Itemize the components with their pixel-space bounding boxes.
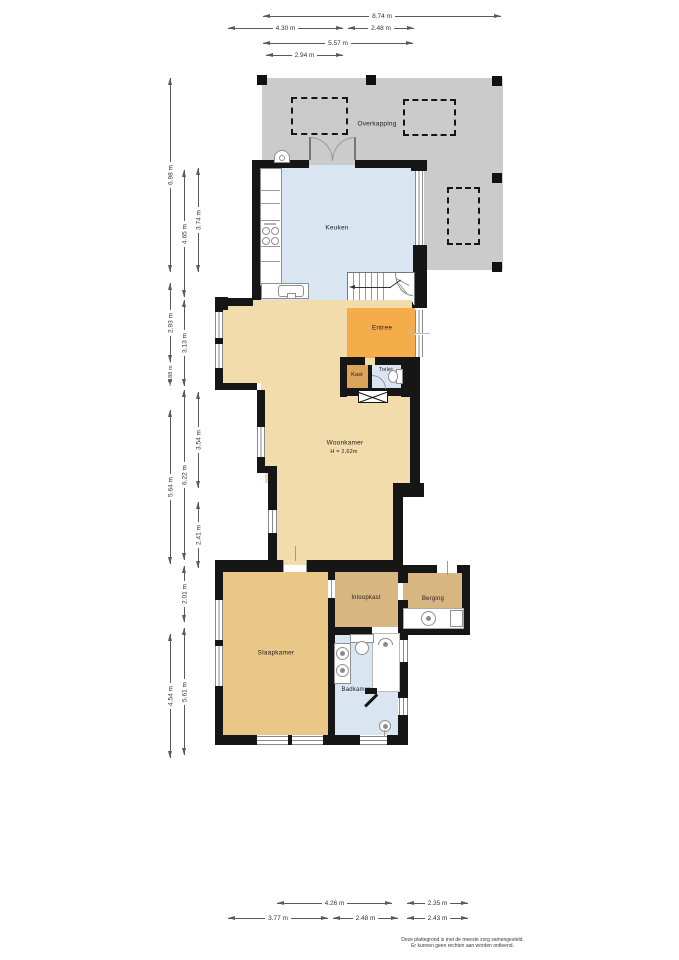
dim-label: 8.74 m	[369, 13, 395, 20]
dim-top-430: 4.30 m	[228, 28, 343, 29]
dim-bottom-377: 3.77 m	[228, 918, 328, 919]
dim-label: 3.13 m	[181, 330, 188, 356]
dim-label: 4.65 m	[181, 221, 188, 247]
shower-fixture-stem	[384, 730, 385, 736]
room-entree	[347, 308, 415, 358]
window	[399, 698, 408, 715]
dim-top-248: 2.48 m	[348, 28, 414, 29]
wall	[226, 298, 253, 306]
dim-left-374: 3.74 m	[198, 168, 199, 272]
dim-left-561: 5.61 m	[184, 628, 185, 755]
room-label-inloopkast: Inloopkast	[351, 595, 380, 601]
wall	[215, 560, 283, 572]
stove-label-mark	[264, 223, 276, 225]
disclaimer: Deze plattegrond is met de meeste zorg s…	[400, 937, 525, 949]
wall	[257, 390, 265, 427]
room-label-woonkamer: Woonkamer	[327, 440, 364, 447]
window	[360, 736, 387, 745]
dim-left-698: 6.98 m	[170, 78, 171, 272]
wall	[257, 466, 277, 473]
counter-divider	[261, 190, 280, 191]
floorplan-page: 8.74 m 4.30 m 2.48 m 5.57 m 2.94 m 6.98 …	[0, 0, 679, 960]
pipe-symbol-dot	[279, 155, 285, 161]
room-label-slaapkamer: Slaapkamer	[258, 650, 295, 657]
dim-label: 2.41 m	[195, 522, 202, 548]
stove-burner	[262, 227, 270, 235]
window	[268, 510, 277, 533]
wall	[323, 735, 360, 745]
canopy-post	[366, 75, 376, 85]
canopy-post	[492, 262, 502, 272]
skylight-outline	[291, 97, 348, 135]
wall	[215, 560, 223, 600]
dim-top-294: 2.94 m	[266, 55, 343, 56]
wall	[355, 160, 413, 168]
dim-label: 2.35 m	[425, 900, 451, 907]
wall	[398, 572, 408, 583]
dim-label: 3.77 m	[265, 915, 291, 922]
door-threshold	[447, 561, 448, 575]
window	[257, 427, 265, 457]
counter-divider	[261, 246, 280, 247]
dim-label: 5.64 m	[167, 474, 174, 500]
wall	[215, 735, 257, 745]
dim-left-313: 3.13 m	[184, 300, 185, 386]
wall	[328, 572, 335, 580]
window-sill-mark	[408, 333, 430, 334]
sink-dot	[340, 668, 345, 673]
dim-label: 2.93 m	[167, 310, 174, 336]
dim-left-622: 6.22 m	[184, 390, 185, 560]
dim-label: 3.74 m	[195, 207, 202, 233]
kitchen-tap	[287, 293, 296, 299]
wall	[398, 715, 408, 745]
window	[415, 171, 423, 245]
stair-arrowhead	[349, 285, 355, 289]
dim-label: 4.26 m	[322, 900, 348, 907]
stove-burner	[271, 237, 279, 245]
canopy-post	[492, 76, 502, 86]
dim-left-201: 2.01 m	[184, 566, 185, 622]
counter-divider	[261, 261, 280, 262]
room-berging	[403, 573, 462, 608]
dim-label: 2.43 m	[425, 915, 451, 922]
wall	[411, 160, 427, 171]
window	[399, 640, 408, 662]
dim-label: 2.01 m	[181, 581, 188, 607]
window	[292, 736, 323, 745]
shower-head-dot	[383, 642, 388, 647]
window	[215, 600, 223, 640]
opening-jamb	[331, 580, 332, 598]
canopy-post	[257, 75, 267, 85]
dim-label: 6.98 m	[167, 162, 174, 188]
room-label-overkapping: Overkapping	[357, 121, 396, 128]
counter-divider	[261, 220, 280, 221]
stove-burner	[262, 237, 270, 245]
shower-fixture-dot	[383, 724, 388, 729]
dim-label: 3.54 m	[195, 427, 202, 453]
wall	[413, 245, 427, 308]
dim-top-557: 5.57 m	[263, 43, 413, 44]
stair-direction-arrow	[353, 287, 391, 288]
dim-left-354: 3.54 m	[198, 392, 199, 488]
dim-label: 5.61 m	[181, 679, 188, 705]
skylight-outline	[447, 187, 480, 245]
window	[415, 310, 423, 333]
wall	[307, 560, 403, 572]
wall	[268, 473, 277, 510]
dim-bottom-248: 2.48 m	[333, 918, 398, 919]
disclaimer-line2: Er kunnen geen rechten aan worden ontlee…	[400, 943, 525, 949]
dim-label: 4.54 m	[167, 683, 174, 709]
washing-machine-dot	[426, 616, 431, 621]
wall	[215, 297, 223, 312]
dim-left-293: 2.93 m	[170, 283, 171, 362]
room-label-kast: Kast	[351, 372, 363, 378]
room-label-berging: Berging	[422, 596, 444, 602]
window	[215, 312, 223, 338]
skylight-outline	[403, 99, 456, 136]
counter-divider	[261, 203, 280, 204]
dim-label: 5.57 m	[325, 40, 351, 47]
dim-label: 6.22 m	[181, 462, 188, 488]
room-label-woonkamer-height: H = 2,62m	[330, 449, 357, 455]
room-label-entree: Entree	[372, 325, 392, 332]
dim-top-874: 8.74 m	[263, 16, 501, 17]
dim-bottom-243: 2.43 m	[407, 918, 468, 919]
utility-box	[450, 610, 463, 627]
wall	[215, 383, 257, 390]
toilet-bowl	[355, 641, 369, 655]
canopy-post	[492, 173, 502, 183]
sink-dot	[340, 651, 345, 656]
dim-label: 0.88 m	[168, 363, 174, 386]
dim-left-454: 4.54 m	[170, 634, 171, 758]
window	[257, 736, 288, 745]
dim-bottom-235: 2.35 m	[407, 903, 468, 904]
window	[215, 344, 223, 368]
room-label-keuken: Keuken	[325, 225, 348, 232]
dim-label: 4.30 m	[273, 25, 299, 32]
wall	[410, 396, 420, 483]
dim-label: 2.48 m	[353, 915, 379, 922]
toilet-bowl	[388, 370, 398, 383]
stove-burner	[271, 227, 279, 235]
dim-left-088: 0.88 m	[170, 362, 171, 386]
wall	[403, 565, 437, 573]
opening-jamb	[306, 560, 307, 572]
dim-left-241: 2.41 m	[198, 502, 199, 568]
window	[415, 335, 423, 357]
wall	[393, 483, 424, 497]
crawl-hatch	[358, 390, 388, 403]
dim-bottom-426: 4.26 m	[277, 903, 392, 904]
dim-left-564: 5.64 m	[170, 410, 171, 564]
door-leaf	[295, 546, 296, 561]
floor-transition	[347, 308, 348, 358]
dim-label: 2.48 m	[368, 25, 394, 32]
dim-label: 2.94 m	[292, 52, 318, 59]
opening-jamb	[283, 560, 284, 572]
dim-left-465: 4.65 m	[184, 170, 185, 297]
window	[215, 646, 223, 686]
